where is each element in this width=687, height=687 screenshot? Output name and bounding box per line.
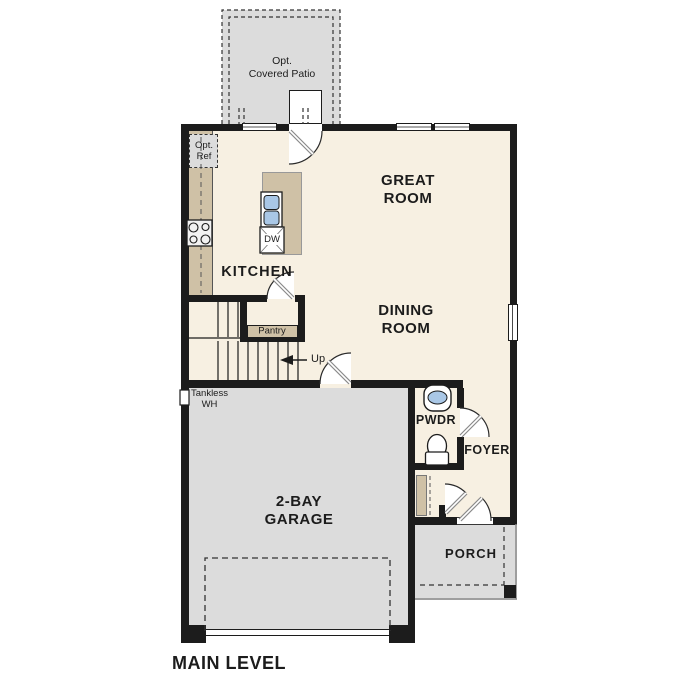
- island-sink: [261, 192, 282, 227]
- dining-room-label: DINING ROOM: [378, 302, 434, 338]
- garage-label: 2-BAY GARAGE: [265, 493, 334, 529]
- tankless-wh-unit: [180, 390, 189, 405]
- pwdr-sink: [424, 385, 451, 411]
- garage-door-dashed-zone: [205, 558, 390, 631]
- stairs-up-arrow: [280, 355, 307, 365]
- porch-label: PORCH: [445, 545, 497, 563]
- patio-door-swing: [289, 131, 322, 164]
- pantry-label: Pantry: [258, 326, 285, 337]
- closet-door-swing: [445, 484, 466, 514]
- pwdr-toilet: [426, 435, 449, 466]
- tankless-wh-label: Tankless WH: [191, 388, 228, 410]
- patio-label: Opt. Covered Patio: [249, 55, 316, 81]
- front-door-swing: [457, 498, 493, 525]
- plan-title: MAIN LEVEL: [172, 653, 286, 674]
- great-room-label: GREAT ROOM: [381, 172, 435, 208]
- pwdr-door-swing: [460, 408, 489, 437]
- plan-drawing-layer: [0, 0, 687, 687]
- floor-plan: Opt. Covered Patio GREAT ROOM DINING ROO…: [0, 0, 687, 687]
- kitchen-label: KITCHEN: [221, 263, 292, 281]
- foyer-label: FOYER: [464, 441, 510, 459]
- dishwasher-label: DW: [262, 234, 282, 245]
- pwdr-label: PWDR: [416, 411, 456, 429]
- cooktop: [187, 220, 212, 246]
- porch-column: [504, 585, 516, 598]
- opt-ref-label: Opt. Ref: [195, 140, 213, 162]
- stairs: [189, 302, 298, 380]
- stairs-up-label: Up: [311, 353, 325, 365]
